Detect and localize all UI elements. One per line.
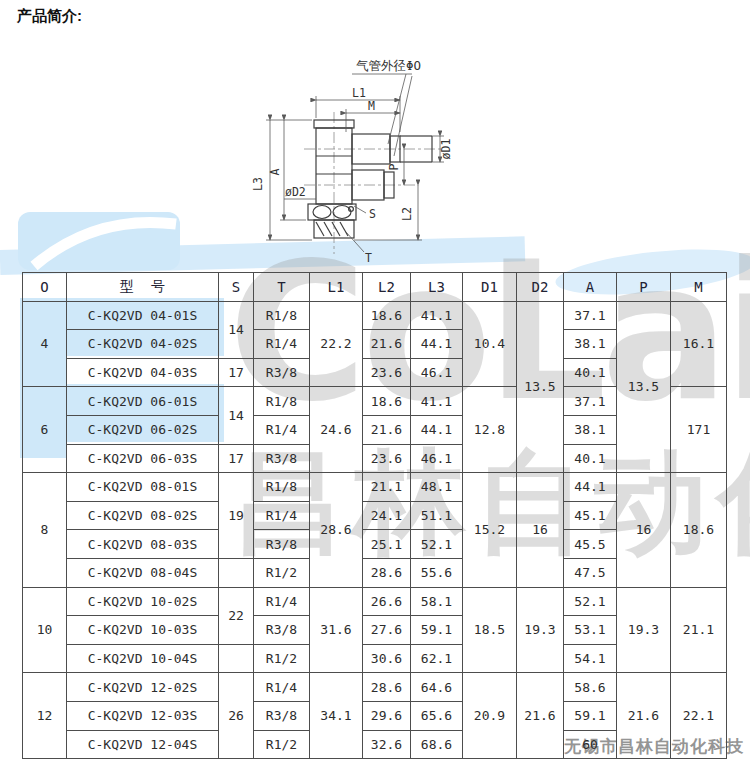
spec-cell: R1/8 [254,473,310,502]
spec-cell: 64.6 [411,673,463,702]
spec-cell: 21.6 [363,330,411,359]
spec-cell: 52.1 [564,587,617,616]
table-row: 8C-KQ2VD 08-01S19R1/828.621.148.115.2164… [23,473,727,502]
spec-cell: R3/8 [254,444,310,473]
spec-cell: R3/8 [254,616,310,645]
spec-cell: 27.6 [363,616,411,645]
spec-cell: 21.6 [617,673,671,759]
spec-cell: 45.5 [564,530,617,559]
column-header: 型 号 [67,273,219,302]
spec-cell: 68.6 [411,730,463,759]
spec-cell: 20.9 [463,673,517,759]
spec-cell: 59.1 [564,701,617,730]
spec-cell: 21.1 [671,587,727,673]
column-header: L3 [411,273,463,302]
spec-cell: R1/4 [254,501,310,530]
spec-cell: 38.1 [564,330,617,359]
spec-cell: 51.1 [411,501,463,530]
spec-cell: R3/8 [254,530,310,559]
spec-cell: 19.3 [617,587,671,673]
spec-cell: 44.1 [411,330,463,359]
diagram-label-a: A [268,168,282,175]
spec-cell: R3/8 [254,358,310,387]
spec-cell: 171 [671,387,727,473]
spec-cell: 38.1 [564,415,617,444]
spec-cell: 18.6 [363,387,411,416]
diagram-label-s: S [369,207,376,221]
spec-cell: 37.1 [564,301,617,330]
spec-cell: 25.1 [363,530,411,559]
spec-cell: 22.1 [671,673,727,759]
model-cell: C-KQ2VD 10-04S [67,644,219,673]
spec-cell: 60 [564,730,617,759]
spec-cell: 44.1 [564,473,617,502]
spec-cell: 18.6 [363,301,411,330]
model-cell: C-KQ2VD 04-01S [67,301,219,330]
spec-cell: 12 [23,673,67,759]
model-cell: C-KQ2VD 12-02S [67,673,219,702]
dimension-lines-icon [266,74,444,252]
spec-cell: 23.6 [363,358,411,387]
spec-cell: 13.5 [517,301,564,473]
spec-cell: 10.4 [463,301,517,387]
spec-cell: 37.1 [564,387,617,416]
diagram-label-p: P [387,163,401,170]
spec-cell: 16 [617,473,671,587]
spec-cell: 29.6 [363,701,411,730]
spec-cell: 4 [23,301,67,387]
spec-table: O型 号STL1L2L3D1D2APM 4C-KQ2VD 04-01S14R1/… [22,272,727,759]
spec-cell: 47.5 [564,558,617,587]
diagram-label-m: M [368,99,375,113]
spec-cell: 40.1 [564,444,617,473]
spec-cell: 14 [219,301,254,358]
model-cell: C-KQ2VD 06-03S [67,444,219,473]
column-header: D1 [463,273,517,302]
spec-cell: 41.1 [411,301,463,330]
spec-cell: 34.1 [310,673,363,759]
product-page: 产品简介: CoLair 昌林自动化 无锡市昌林自动化科技 [0,0,750,768]
column-header: L2 [363,273,411,302]
spec-cell: 45.1 [564,501,617,530]
spec-cell: 22.2 [310,301,363,387]
column-header: O [23,273,67,302]
spec-cell: 58.6 [564,673,617,702]
model-cell: C-KQ2VD 06-01S [67,387,219,416]
model-cell: C-KQ2VD 10-02S [67,587,219,616]
spec-cell: 12.8 [463,387,517,473]
spec-cell: 65.6 [411,701,463,730]
spec-cell: 40.1 [564,358,617,387]
diagram-label-t: T [365,251,372,265]
spec-cell: 19 [219,473,254,559]
model-cell: C-KQ2VD 12-04S [67,730,219,759]
spec-cell: R1/8 [254,301,310,330]
column-header: S [219,273,254,302]
diagram-label-od2: øD2 [285,185,306,199]
diagram-label-l1: L1 [352,86,366,100]
column-header: L1 [310,273,363,302]
spec-cell: 30.6 [363,644,411,673]
spec-cell: 54.1 [564,644,617,673]
page-title: 产品简介: [17,7,82,26]
spec-cell: 32.6 [363,730,411,759]
spec-cell: R1/2 [254,730,310,759]
model-cell: C-KQ2VD 06-02S [67,415,219,444]
spec-cell: 16.1 [671,301,727,387]
column-header: D2 [517,273,564,302]
model-cell: C-KQ2VD 04-02S [67,330,219,359]
column-header: P [617,273,671,302]
spec-cell: R1/4 [254,673,310,702]
model-cell: C-KQ2VD 04-03S [67,358,219,387]
model-cell: C-KQ2VD 08-02S [67,501,219,530]
spec-cell: R1/8 [254,387,310,416]
spec-cell: 53.1 [564,616,617,645]
column-header: M [671,273,727,302]
spec-cell: 14 [219,387,254,444]
column-header: A [564,273,617,302]
header-row: O型 号STL1L2L3D1D2APM [23,273,727,302]
spec-cell: 28.6 [363,558,411,587]
spec-cell: R1/2 [254,558,310,587]
model-cell: C-KQ2VD 12-03S [67,701,219,730]
spec-cell: 26.6 [363,587,411,616]
diagram-label-tube-od: 气管外径ΦO [356,58,421,73]
model-cell: C-KQ2VD 08-04S [67,558,219,587]
spec-cell: 24.1 [363,501,411,530]
spec-cell: 22 [219,587,254,644]
spec-cell: 18.6 [671,473,727,587]
table-row: 10C-KQ2VD 10-02S22R1/431.626.658.118.519… [23,587,727,616]
spec-cell: 28.6 [310,473,363,587]
spec-cell: R3/8 [254,701,310,730]
spec-cell: 62.1 [411,644,463,673]
spec-cell: 55.6 [411,558,463,587]
model-cell: C-KQ2VD 08-03S [67,530,219,559]
spec-cell: R1/2 [254,644,310,673]
spec-cell: 46.1 [411,358,463,387]
spec-cell: 41.1 [411,387,463,416]
spec-cell: 23.6 [363,444,411,473]
spec-cell: R1/4 [254,415,310,444]
table-row: 4C-KQ2VD 04-01S14R1/822.218.641.110.413.… [23,301,727,330]
spec-cell: 24.6 [310,387,363,473]
spec-cell: 6 [23,387,67,473]
table-row: 12C-KQ2VD 12-02S26R1/434.128.664.620.921… [23,673,727,702]
spec-cell: 8 [23,473,67,587]
spec-cell [219,644,254,673]
spec-cell: 21.1 [363,473,411,502]
fitting-diagram: 气管外径ΦO L1 M L3 A øD2 S T L2 P øD1 [248,56,563,270]
spec-cell: 46.1 [411,444,463,473]
spec-cell: 19.3 [517,587,564,673]
spec-cell: 28.6 [363,673,411,702]
diagram-label-od1: øD1 [439,139,453,160]
spec-cell: 17 [219,358,254,387]
spec-cell: 48.1 [411,473,463,502]
spec-cell: 18.5 [463,587,517,673]
spec-cell: 21.6 [517,673,564,759]
column-header: T [254,273,310,302]
spec-table-wrap: O型 号STL1L2L3D1D2APM 4C-KQ2VD 04-01S14R1/… [22,272,727,759]
diagram-label-l2: L2 [400,207,414,221]
spec-cell: R1/4 [254,587,310,616]
spec-cell: 15.2 [463,473,517,587]
spec-cell: 13.5 [617,301,671,473]
spec-cell: 26 [219,673,254,759]
spec-cell: 59.1 [411,616,463,645]
diagram-label-l3: L3 [251,177,265,191]
spec-cell: 16 [517,473,564,587]
spec-cell: R1/4 [254,330,310,359]
spec-cell: 58.1 [411,587,463,616]
spec-cell: 31.6 [310,587,363,673]
centerlines-icon [304,112,444,254]
model-cell: C-KQ2VD 08-01S [67,473,219,502]
spec-cell: 10 [23,587,67,673]
spec-cell: 21.6 [363,415,411,444]
spec-cell [219,558,254,587]
spec-cell: 17 [219,444,254,473]
spec-cell: 44.1 [411,415,463,444]
model-cell: C-KQ2VD 10-03S [67,616,219,645]
spec-cell: 52.1 [411,530,463,559]
